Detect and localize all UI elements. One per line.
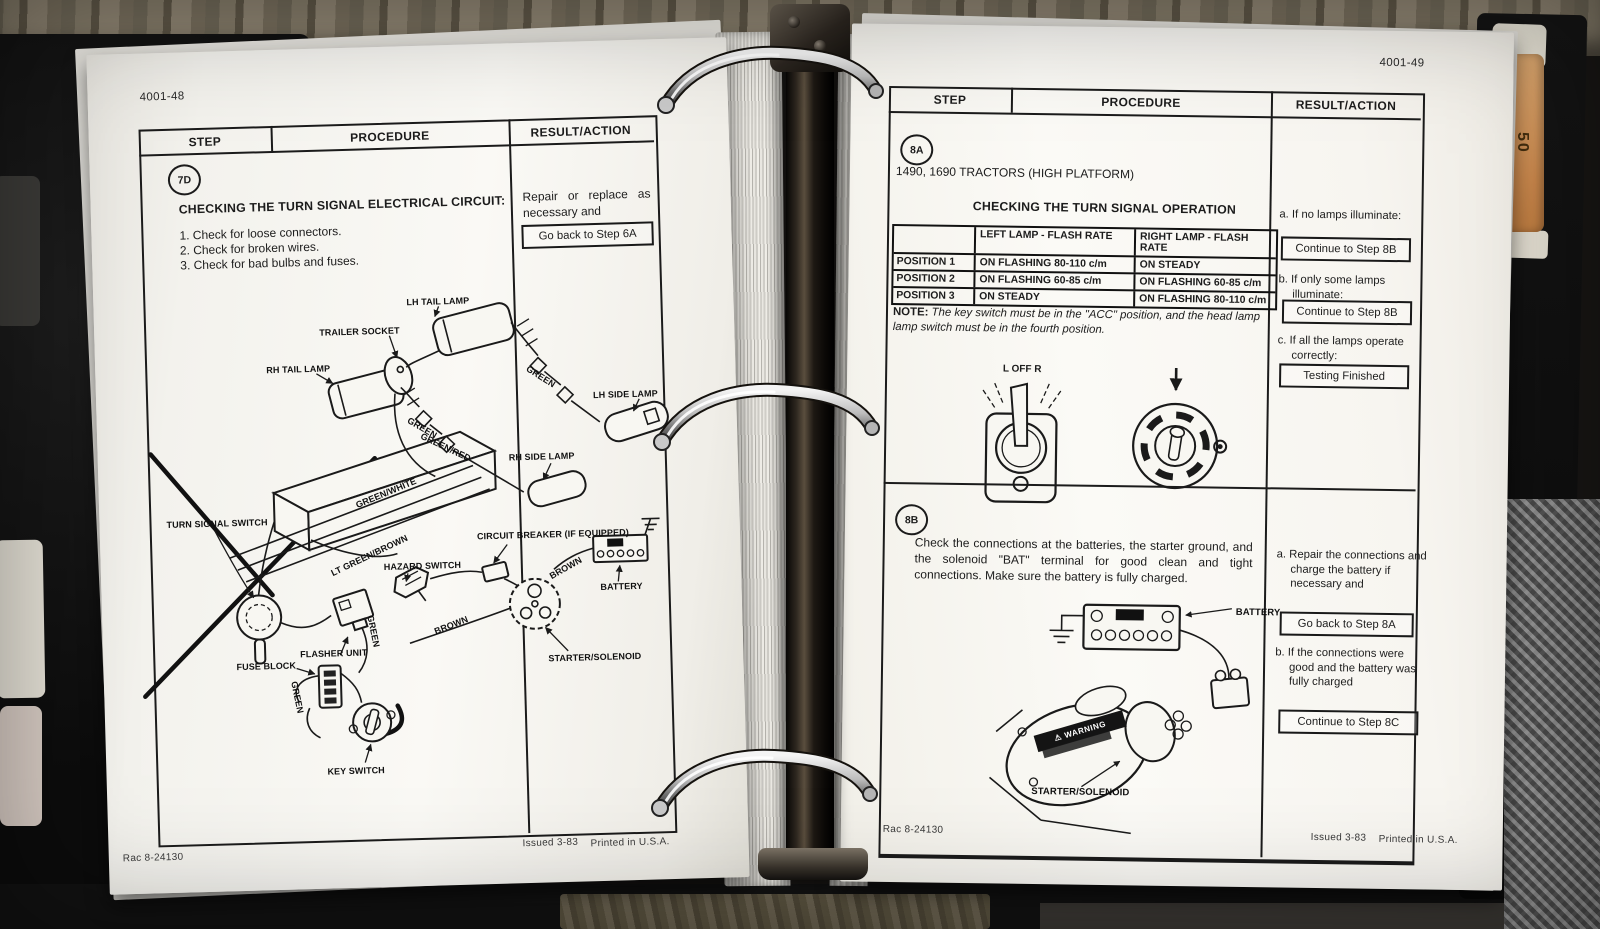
right-page: 4001-49 STEP PROCEDURE RESULT/ACTION 8A … <box>840 23 1514 890</box>
label-rh-side-lamp: RH SIDE LAMP <box>509 451 575 463</box>
continue-8b-box-2: Continue to Step 8B <box>1282 299 1412 325</box>
col-header-step-right: STEP <box>900 92 1000 107</box>
spine-screw-2 <box>814 40 826 52</box>
left-edge-tab-1 <box>0 176 40 326</box>
footer-issued-right: Issued 3-83 <box>1311 832 1367 844</box>
label-flasher-unit: FLASHER UNIT <box>300 647 367 659</box>
left-edge-tab-3 <box>0 706 42 826</box>
rh-side-lamp-drawing <box>526 468 589 509</box>
label-fuse-block: FUSE BLOCK <box>236 660 296 672</box>
pos3-label: POSITION 3 <box>893 288 975 304</box>
col-header-result-right: RESULT/ACTION <box>1286 97 1406 113</box>
toggle-switch-label: L OFF R <box>967 363 1077 376</box>
pos2-label: POSITION 2 <box>893 271 975 287</box>
binder-photo-scene: 50 STEERING 4001-48 STEP PROCEDURE RESUL… <box>0 0 1600 929</box>
footer-code-right: Rac 8-24130 <box>883 824 944 836</box>
footer-issued-left: Issued 3-83 <box>522 837 578 850</box>
col-header-step-left: STEP <box>155 133 255 150</box>
starter-8b <box>989 679 1192 834</box>
footer-code-left: Rac 8-24130 <box>123 852 184 865</box>
label-battery-left: BATTERY <box>600 581 642 592</box>
binder-spine-bar <box>786 38 834 880</box>
starter-solenoid-drawing <box>509 578 560 629</box>
label-battery-right: BATTERY <box>1236 607 1281 619</box>
hazard-switch-drawing <box>394 567 429 602</box>
pos1-label: POSITION 1 <box>894 254 976 270</box>
label-rh-tail-lamp: RH TAIL LAMP <box>266 363 330 375</box>
procedure-text-8b: Check the connections at the batteries, … <box>914 534 1253 587</box>
pos2-left: ON FLASHING 60-85 c/m <box>975 272 1135 289</box>
label-lh-tail-lamp: LH TAIL LAMP <box>406 296 469 308</box>
col-header-procedure-left: PROCEDURE <box>340 128 440 145</box>
binder-spine-foot <box>758 848 868 880</box>
footer-printed-right: Printed in U.S.A. <box>1379 834 1458 846</box>
continue-step-8c-box: Continue to Step 8C <box>1278 709 1418 735</box>
label-starter-solenoid-right: STARTER/SOLENOID <box>1031 786 1129 798</box>
pos3-right: ON FLASHING 80-110 c/m <box>1135 291 1275 308</box>
lh-tail-lamp-drawing <box>431 301 516 357</box>
left-page: 4001-48 STEP PROCEDURE RESULT/ACTION 7D … <box>86 37 749 895</box>
step-column-divider-right <box>1011 88 1013 113</box>
connector-cube <box>1210 668 1249 708</box>
flash-table-header-row: LEFT LAMP - FLASH RATE RIGHT LAMP - FLAS… <box>894 226 1276 257</box>
note-text: The key switch must be in the "ACC" posi… <box>893 307 1260 337</box>
page-number-left: 4001-48 <box>139 90 184 103</box>
left-edge-tab-2 <box>0 540 45 699</box>
flash-header-blank <box>894 226 976 253</box>
testing-finished-box: Testing Finished <box>1279 363 1409 389</box>
battery-starter-drawing <box>981 581 1274 837</box>
result-8b-b-label: b. If the connections were good and the … <box>1275 645 1428 691</box>
fuse-block-drawing <box>319 665 342 708</box>
flash-header-left-lamp: LEFT LAMP - FLASH RATE <box>976 227 1136 255</box>
floor-patch <box>560 894 990 929</box>
pos1-right: ON STEADY <box>1136 257 1276 274</box>
toggle-switch-drawing <box>965 377 1077 509</box>
binder-spine-top-plate <box>770 4 850 72</box>
footer-printed-left: Printed in U.S.A. <box>590 836 669 849</box>
label-key-switch: KEY SWITCH <box>327 765 385 777</box>
turn-signal-wiring-diagram: LH TAIL LAMP TRAILER SOCKET RH TAIL LAMP… <box>138 284 672 803</box>
pos1-left: ON FLASHING 80-110 c/m <box>976 255 1136 272</box>
key-switch-drawing <box>349 703 396 742</box>
result-8a-c-label: c. If all the lamps operate correctly: <box>1277 333 1431 364</box>
note-block: NOTE: The key switch must be in the "ACC… <box>893 305 1269 341</box>
pos2-right: ON FLASHING 60-85 c/m <box>1135 274 1275 291</box>
spine-screw-1 <box>788 16 800 28</box>
go-back-step-6a-box: Go back to Step 6A <box>521 221 654 249</box>
flash-header-right-lamp: RIGHT LAMP - FLASH RATE <box>1136 229 1276 257</box>
note-label: NOTE: <box>893 306 929 318</box>
pos3-left: ON STEADY <box>975 289 1135 306</box>
result-text-7d: Repair or replace as necessary and <box>522 185 651 221</box>
page-number-right: 4001-49 <box>1379 57 1424 70</box>
label-lh-side-lamp: LH SIDE LAMP <box>593 388 658 400</box>
flash-rate-table: LEFT LAMP - FLASH RATE RIGHT LAMP - FLAS… <box>891 224 1278 310</box>
carpet-corner <box>1504 499 1600 929</box>
battery-8b <box>1049 604 1180 650</box>
continue-8b-box-1: Continue to Step 8B <box>1281 236 1411 262</box>
battery-drawing <box>593 518 661 562</box>
turn-signal-switch-drawing <box>237 595 283 664</box>
wiring-diagram-art <box>138 284 672 803</box>
label-hazard-switch: HAZARD SWITCH <box>384 560 462 572</box>
result-8a-a-label: a. If no lamps illuminate: <box>1279 207 1427 224</box>
col-header-procedure-right: PROCEDURE <box>1091 95 1191 110</box>
go-back-step-8a-box: Go back to Step 8A <box>1280 611 1414 637</box>
tab-number: 50 <box>1513 132 1531 154</box>
result-8b-a-label: a. Repair the connections and charge the… <box>1276 547 1429 593</box>
